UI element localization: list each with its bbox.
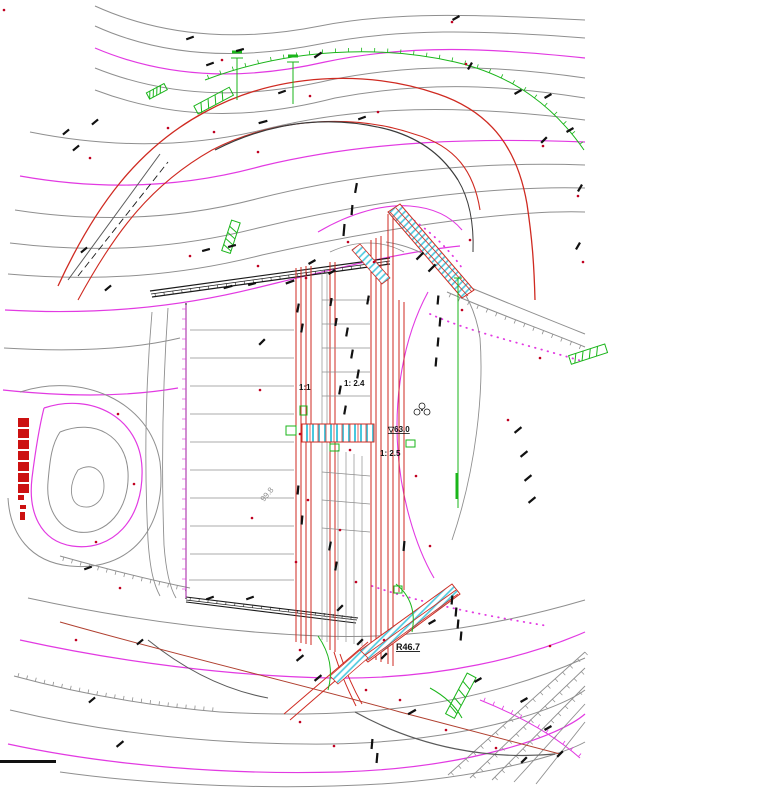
green-arc-1 bbox=[318, 636, 330, 690]
contour-hachured-2-tick bbox=[106, 693, 107, 697]
radius-label: R46.7 bbox=[396, 642, 420, 652]
contour-magenta-apron bbox=[397, 292, 434, 578]
contour-magenta-b6 bbox=[8, 714, 585, 773]
basin-toe-hatch bbox=[186, 600, 357, 620]
green-channel-top-tick bbox=[232, 67, 233, 71]
contour-gray-1 bbox=[95, 6, 585, 35]
bench-slope-1-tick bbox=[540, 692, 543, 695]
basin-toe-line-1 bbox=[186, 597, 358, 618]
green-channel-top-tick bbox=[572, 131, 575, 134]
bench-slope-3-tick bbox=[558, 713, 561, 716]
green-channel-top-tick bbox=[245, 63, 246, 67]
knoll-gray-core bbox=[71, 467, 104, 507]
bench-slope-1-tick bbox=[585, 652, 588, 655]
bench-slope-1-tick bbox=[458, 766, 461, 769]
contour-hachured-2-tick bbox=[141, 699, 142, 703]
basin-crest-hatch bbox=[151, 261, 390, 294]
bench-slope-3-tick bbox=[523, 749, 526, 752]
contour-gray-b4 bbox=[220, 658, 585, 714]
bench-slope-3-tick bbox=[530, 742, 533, 745]
dam-wall-red-left bbox=[296, 266, 311, 645]
site-plan-drawing: 1:11: 2.41: 2.5R46.7▽63.099.8 bbox=[0, 0, 773, 807]
bench-slope-1-tick bbox=[481, 746, 484, 749]
contour-gray-2 bbox=[95, 26, 585, 54]
green-channel-top-tick bbox=[426, 53, 427, 57]
border-bar-bottom-left bbox=[0, 760, 56, 763]
gray-bench-road-2-tick bbox=[570, 342, 571, 346]
basin-water-lines bbox=[189, 330, 294, 580]
bench-slope-2-tick bbox=[581, 672, 584, 675]
bench-slope-3 bbox=[492, 686, 585, 780]
green-channel-top-tick bbox=[489, 69, 491, 73]
slope-protection-strip-4 bbox=[569, 344, 608, 364]
bench-slope-2-tick bbox=[480, 768, 483, 771]
contour-magenta-2 bbox=[20, 140, 585, 185]
knoll-magenta bbox=[31, 403, 142, 546]
contour-hachured-2-tick bbox=[70, 686, 71, 690]
basin-crest-line-1 bbox=[150, 258, 390, 291]
contour-hachured-1-tick bbox=[106, 569, 107, 573]
contour-hachured-2-tick bbox=[18, 673, 19, 677]
contour-gray-b5 bbox=[10, 690, 585, 744]
gray-bench-road-2-tick bbox=[495, 313, 496, 317]
contour-hachured-1 bbox=[60, 556, 190, 588]
contour-magenta-hachured-tick bbox=[578, 754, 581, 757]
bench-slope-3-tick bbox=[502, 770, 505, 773]
cad-canvas: 1:11: 2.41: 2.5R46.7▽63.099.8 bbox=[0, 0, 773, 807]
wingwall-arc-2 bbox=[452, 338, 481, 540]
contour-hachured-2-tick bbox=[159, 701, 160, 705]
bench-slope-3-tick bbox=[551, 720, 554, 723]
contour-magenta-hachured-tick bbox=[484, 698, 486, 702]
contour-magenta-hachured-tick bbox=[511, 710, 513, 714]
gray-bench-road-2-tick bbox=[514, 320, 515, 324]
knoll-gray-inner bbox=[48, 427, 128, 532]
bench-slope-1-tick bbox=[503, 726, 506, 729]
gray-bench-road-2-tick bbox=[486, 309, 487, 313]
contour-hachured-2-tick bbox=[88, 689, 89, 693]
bench-slope-1-tick bbox=[451, 772, 454, 775]
contour-hachured-2-tick bbox=[62, 684, 63, 688]
slope-label-3: 1: 2.5 bbox=[380, 449, 401, 458]
contour-magenta-cross-top bbox=[318, 206, 462, 232]
bench-slope-2-tick bbox=[545, 706, 548, 709]
gray-bench-road-2-tick bbox=[579, 345, 581, 349]
gray-bench-road-2-tick bbox=[449, 294, 451, 298]
contour-hachured-2-tick bbox=[123, 696, 124, 700]
gully-gray-2 bbox=[163, 308, 176, 598]
gray-bench-road-2-tick bbox=[551, 334, 552, 338]
gray-bench-road-2 bbox=[447, 292, 585, 347]
gray-bench-road-2-tick bbox=[505, 316, 506, 320]
slope-label-2: 1: 2.4 bbox=[344, 379, 365, 388]
basin-crest-line-2 bbox=[152, 264, 390, 297]
bench-slope-1-tick bbox=[496, 732, 499, 735]
magenta-dotted-lower bbox=[372, 586, 548, 626]
contour-hachured-1-tick bbox=[98, 566, 99, 570]
contour-elevation-label: 99.8 bbox=[259, 485, 276, 503]
green-flag-labels bbox=[232, 52, 298, 56]
drawing-layers: 1:11: 2.41: 2.5R46.7▽63.099.8 bbox=[0, 6, 608, 787]
contour-hachured-2-tick bbox=[27, 675, 28, 679]
benchmark-center bbox=[421, 409, 423, 411]
contour-magenta-hachured bbox=[480, 700, 580, 758]
slope-label-1: 1:1 bbox=[299, 383, 311, 392]
bench-slope-2-tick bbox=[567, 685, 570, 688]
gray-bench-road-2-tick bbox=[523, 323, 524, 327]
small-annotation-marks bbox=[63, 16, 582, 763]
bench-slope-1-tick bbox=[548, 685, 551, 688]
green-channel-top-tick bbox=[270, 57, 271, 61]
contour-hachured-1-tick bbox=[177, 585, 178, 589]
old-road-red-low bbox=[60, 622, 560, 754]
slope-protection-strip-3 bbox=[222, 220, 240, 253]
green-channel-top-tick bbox=[513, 80, 515, 83]
bench-slope-1-tick bbox=[466, 759, 469, 762]
bench-slope-2-tick bbox=[487, 761, 490, 764]
bench-slope-2-tick bbox=[552, 699, 555, 702]
contour-gray-7 bbox=[10, 188, 585, 249]
spot-elevation-dots bbox=[3, 9, 585, 750]
green-channel-top-tick bbox=[501, 74, 503, 78]
road-black-top bbox=[215, 122, 458, 180]
bench-slope-2-tick bbox=[473, 775, 476, 778]
bench-slope-3-tick bbox=[565, 706, 568, 709]
green-channel-top-tick bbox=[258, 60, 259, 64]
gray-bench-road-2-tick bbox=[477, 305, 479, 309]
contour-gray-8 bbox=[8, 212, 585, 278]
contour-hachured-2-tick bbox=[53, 682, 54, 686]
bench-slope-3-tick bbox=[495, 777, 498, 780]
contour-hachured-1-tick bbox=[115, 571, 116, 575]
bench-slope-1-tick bbox=[563, 672, 566, 675]
green-channel-top-tick bbox=[207, 75, 208, 79]
contour-hachured-2-tick bbox=[150, 700, 151, 704]
chute-gray-verticals bbox=[322, 270, 362, 646]
contour-hachured-2-tick bbox=[132, 697, 133, 701]
contour-hachured-1-tick bbox=[71, 559, 72, 563]
road-curve-dark-left bbox=[148, 640, 268, 698]
contour-gray-4 bbox=[95, 87, 585, 114]
contour-gray-9 bbox=[4, 338, 180, 350]
bench-slope-2-tick bbox=[531, 720, 534, 723]
bench-slope-1-tick bbox=[570, 665, 573, 668]
bench-slope-3-tick bbox=[572, 699, 575, 702]
stilling-basin-hatch-band bbox=[302, 424, 374, 442]
bench-slope-1-tick bbox=[518, 712, 521, 715]
road-black-top-2 bbox=[458, 180, 473, 252]
green-channel-top-tick bbox=[545, 103, 548, 106]
contour-hachured-2-tick bbox=[115, 694, 116, 698]
bench-slope-2-tick bbox=[538, 713, 541, 716]
contour-hachured-2-tick bbox=[168, 702, 169, 706]
contour-hachured-1-tick bbox=[63, 557, 64, 561]
bench-slope-2-tick bbox=[523, 727, 526, 730]
dam-wall-red-mid bbox=[330, 262, 335, 652]
contour-hachured-1-tick bbox=[159, 581, 160, 585]
green-channel-top-tick bbox=[439, 55, 440, 59]
contour-magenta-hachured-tick bbox=[563, 741, 565, 744]
contour-hachured-2-tick bbox=[44, 680, 45, 684]
green-channel-top-tick bbox=[563, 121, 566, 124]
bench-slope-2-tick bbox=[516, 734, 519, 737]
knoll-gray-outer bbox=[8, 386, 161, 567]
green-channel-top-tick bbox=[554, 112, 557, 115]
gray-bench-road-2-tick bbox=[542, 331, 543, 335]
contour-hachured-1-tick bbox=[168, 583, 169, 587]
contour-hachured-2-tick bbox=[79, 688, 80, 692]
bench-slope-3-tick bbox=[516, 756, 519, 759]
bench-slope-1-tick bbox=[555, 679, 558, 682]
bench-slope-2-tick bbox=[574, 678, 577, 681]
contour-hachured-1-tick bbox=[80, 562, 81, 566]
bench-slope-1-tick bbox=[533, 699, 536, 702]
contour-magenta-hachured-tick bbox=[502, 706, 504, 710]
green-section-flags bbox=[231, 58, 299, 104]
bench-slope-1-tick bbox=[488, 739, 491, 742]
bench-slope-3-tick bbox=[537, 735, 540, 738]
spillway-hatch-band-upper bbox=[388, 204, 474, 298]
contour-magenta-hachured-tick bbox=[493, 702, 495, 706]
contour-magenta-hachured-tick bbox=[538, 724, 540, 727]
elevation-label: ▽63.0 bbox=[387, 425, 410, 434]
drawing-title-vertical-red bbox=[18, 418, 29, 520]
gray-bench-road-2-tick bbox=[561, 338, 562, 342]
contour-hachured-1-tick bbox=[133, 575, 134, 579]
gray-bench-road-2-tick bbox=[458, 297, 460, 301]
bench-slope-2-tick bbox=[560, 692, 563, 695]
contour-hachured-2-tick bbox=[35, 678, 36, 682]
green-channel-top-tick bbox=[452, 57, 453, 61]
green-channel-top-tick bbox=[283, 55, 284, 59]
contour-hachured-1-tick bbox=[124, 573, 125, 577]
gray-bench-road-2-tick bbox=[533, 327, 534, 331]
contour-hachured-2-tick bbox=[97, 691, 98, 695]
contour-hachured-1-tick bbox=[141, 577, 142, 581]
bench-slope-3-tick bbox=[509, 763, 512, 766]
green-channel-top bbox=[205, 52, 584, 150]
bench-slope-1-tick bbox=[525, 706, 528, 709]
contour-hachured-1-tick bbox=[150, 579, 151, 583]
road-curve-dark-bottom bbox=[355, 712, 555, 755]
green-channel-top-tick bbox=[534, 95, 536, 98]
